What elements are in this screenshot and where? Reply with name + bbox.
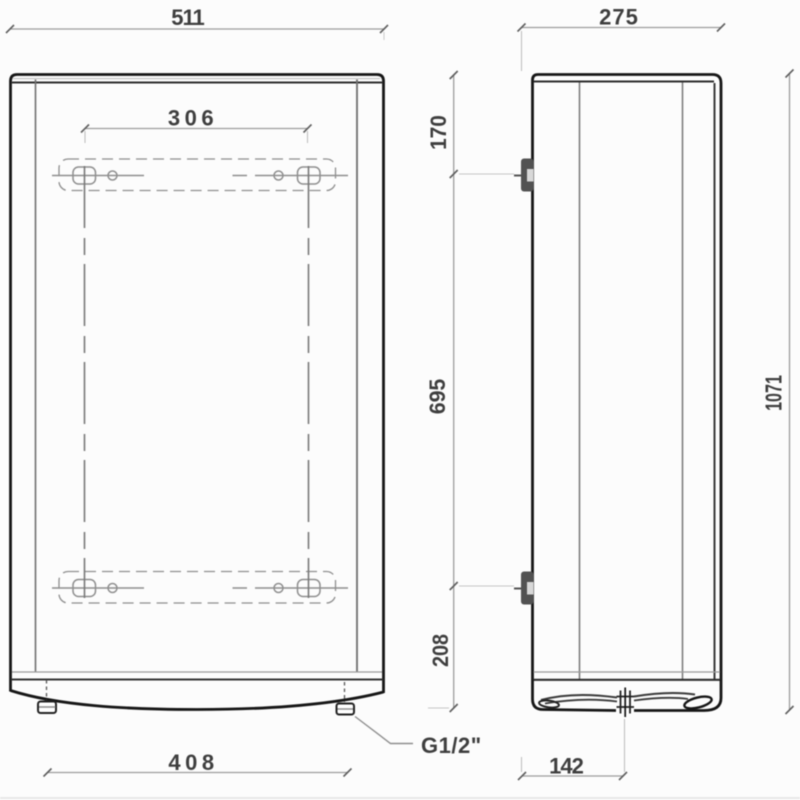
svg-text:G1/2": G1/2"	[421, 733, 482, 758]
svg-text:208: 208	[429, 634, 453, 667]
svg-text:408: 408	[168, 750, 218, 775]
svg-text:142: 142	[549, 754, 583, 779]
svg-text:1071: 1071	[762, 375, 787, 411]
svg-text:275: 275	[599, 5, 639, 30]
svg-text:695: 695	[425, 379, 450, 415]
svg-text:511: 511	[171, 5, 204, 30]
svg-text:306: 306	[168, 106, 218, 131]
svg-text:170: 170	[427, 115, 452, 150]
